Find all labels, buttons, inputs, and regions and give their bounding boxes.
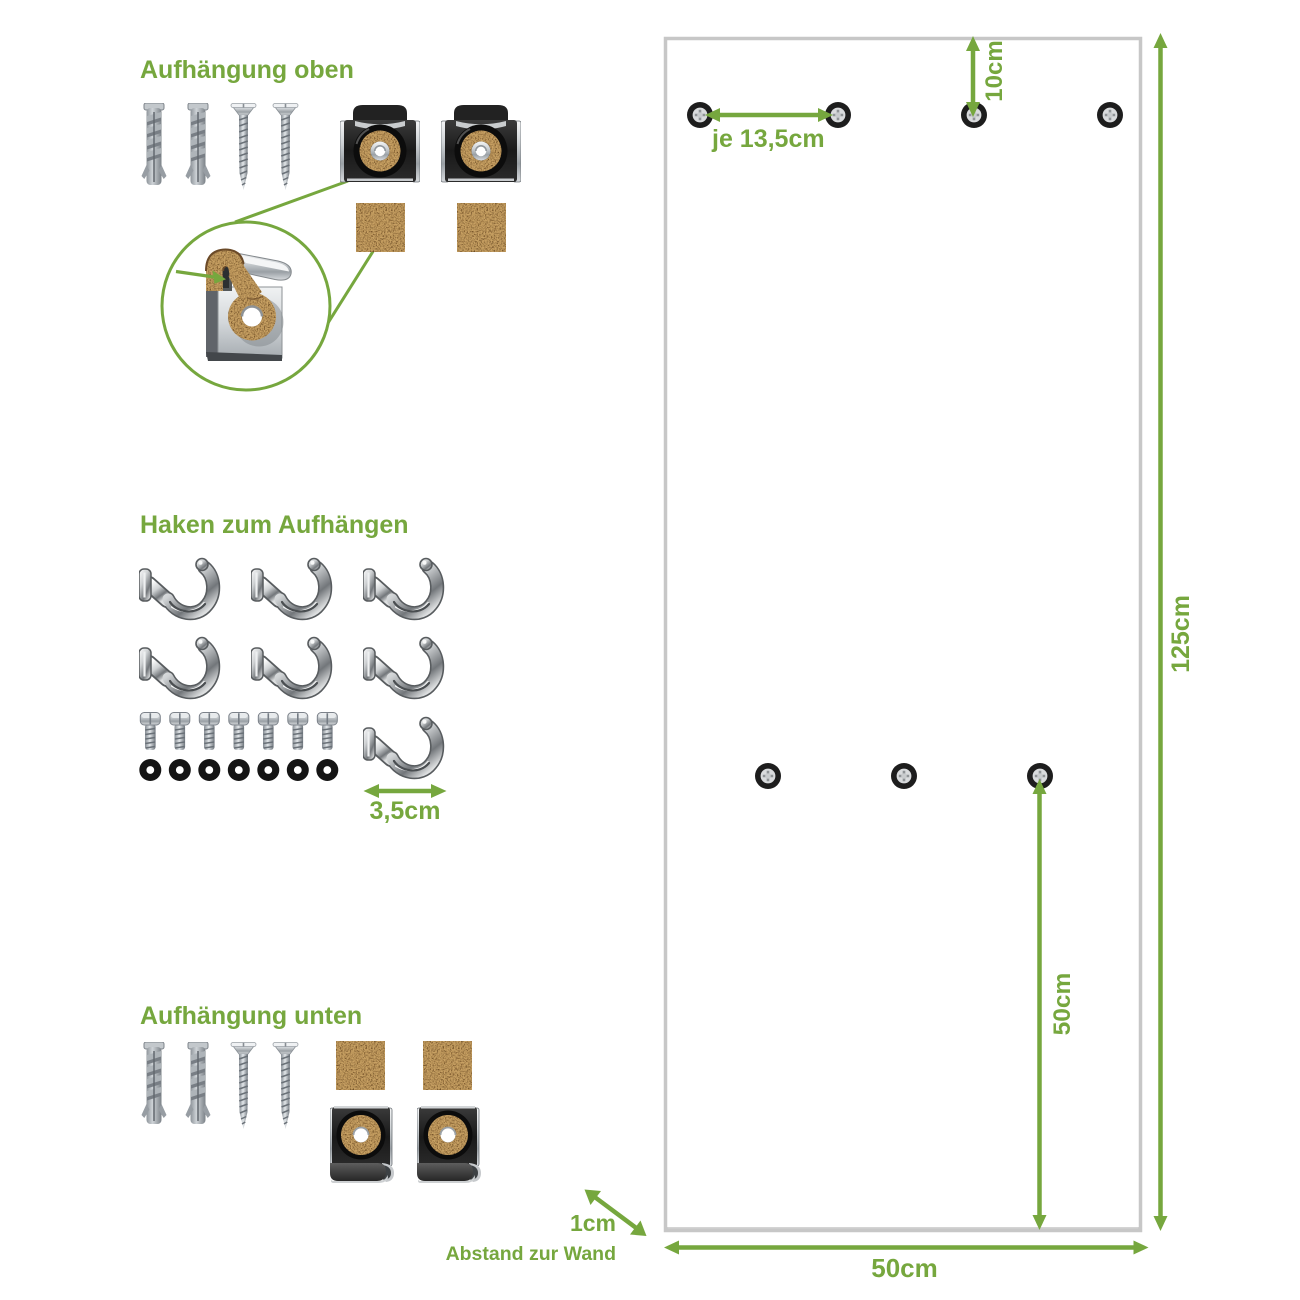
svg-text:Aufhängung oben: Aufhängung oben xyxy=(140,56,354,84)
svg-text:125cm: 125cm xyxy=(1167,595,1195,673)
svg-text:je 13,5cm: je 13,5cm xyxy=(711,125,825,153)
svg-text:Aufhängung unten: Aufhängung unten xyxy=(140,1002,362,1030)
svg-text:50cm: 50cm xyxy=(1049,973,1076,1036)
svg-text:Haken zum Aufhängen: Haken zum Aufhängen xyxy=(140,511,409,539)
svg-text:Abstand zur Wand: Abstand zur Wand xyxy=(446,1243,616,1265)
svg-text:50cm: 50cm xyxy=(871,1253,938,1283)
svg-text:3,5cm: 3,5cm xyxy=(370,797,441,825)
svg-text:1cm: 1cm xyxy=(570,1210,616,1236)
svg-text:10cm: 10cm xyxy=(981,40,1008,101)
